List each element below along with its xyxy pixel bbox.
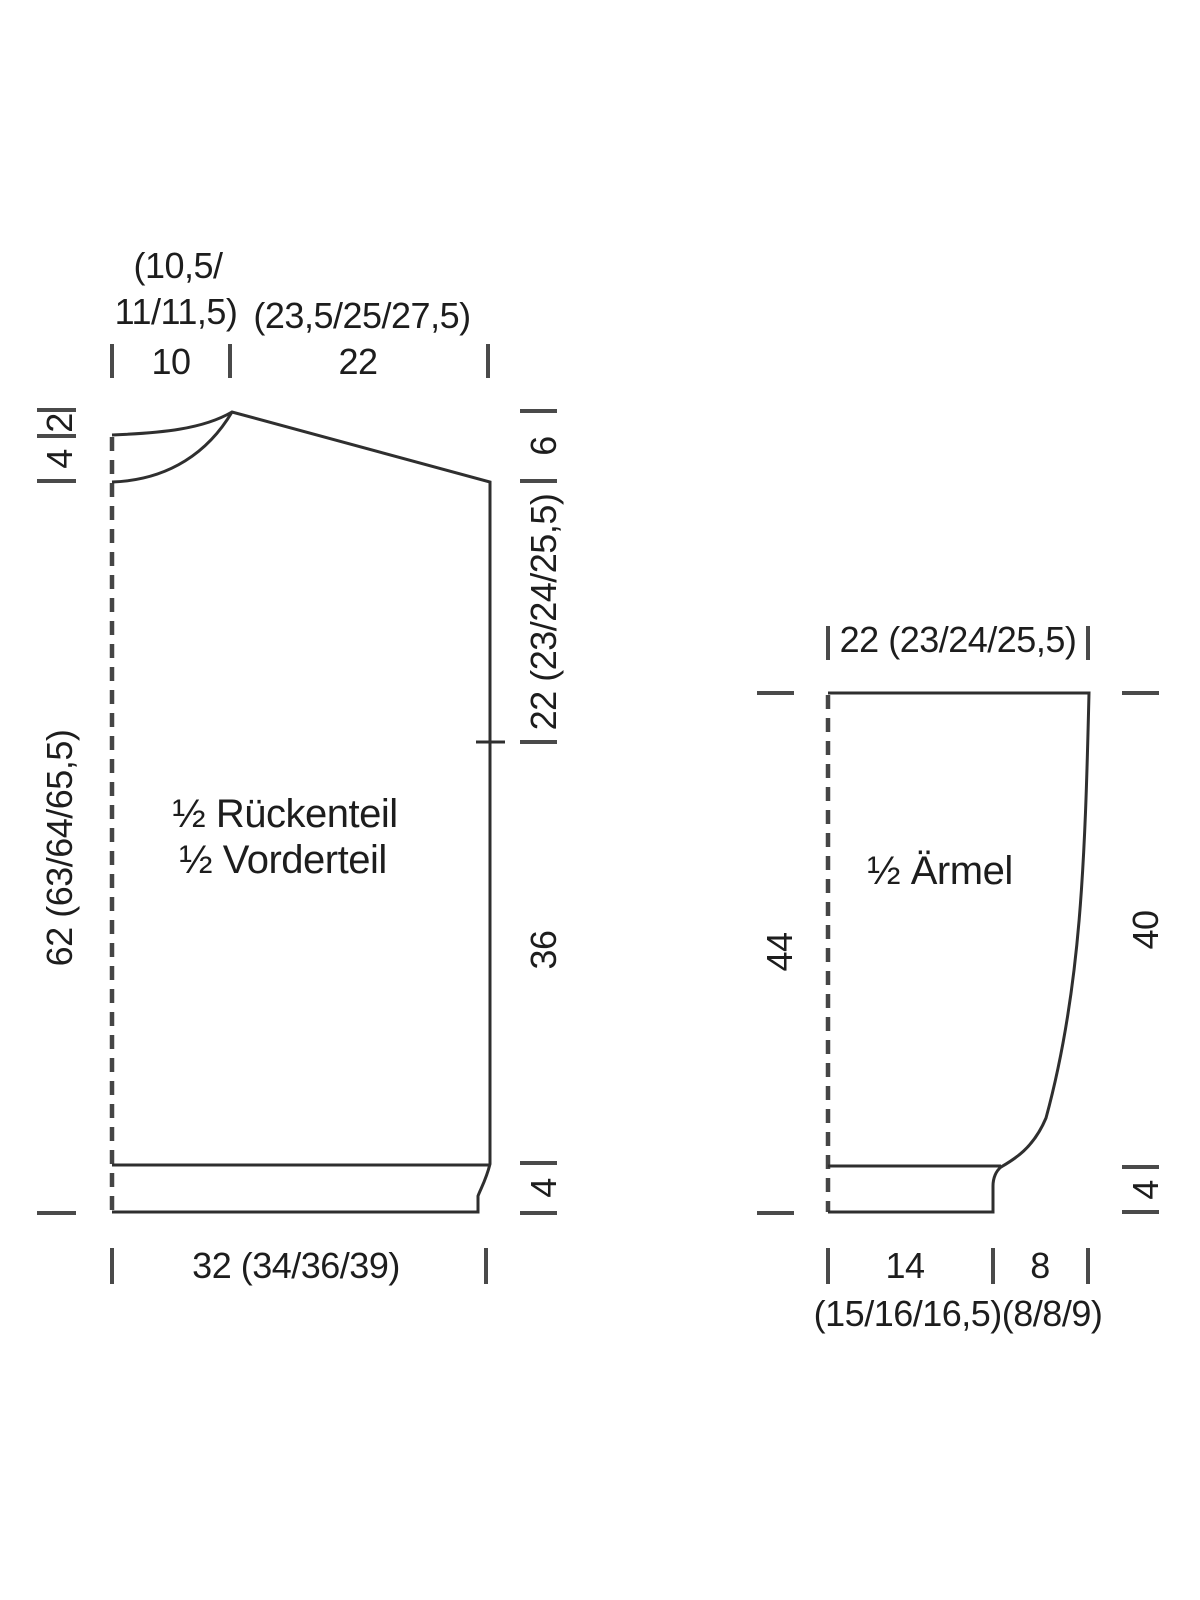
sleeve-cuff-sizes: (15/16/16,5) [814,1293,1002,1334]
body-ribbing-height: 4 [523,1178,564,1198]
sleeve-cuff-width: 14 [885,1245,924,1286]
sleeve-bottom-sizes: (15/16/16,5)(8/8/9) [814,1293,1103,1334]
sleeve-piece-name: ½ Ärmel [867,849,1012,893]
body-front-neck-depth: 4 [39,449,80,469]
pattern-schematic-canvas: (10,5/ 11/11,5) (23,5/25/27,5) 10 22 ½ R… [0,0,1200,1600]
sleeve-outline [828,693,1089,1212]
sleeve-piece [828,693,1089,1212]
body-neck-sizes-line1: (10,5/ [133,245,223,286]
body-back-neck-depth: 2 [39,413,80,433]
body-piece-name-line1: ½ Rückenteil [172,792,397,836]
body-neck-width: 10 [151,341,190,382]
sleeve-upper-length: 40 [1125,910,1166,949]
sleeve-ext-width: 8 [1030,1245,1050,1286]
sleeve-ribbing-height: 4 [1125,1180,1166,1200]
body-shoulder-slope: 6 [523,436,564,456]
pattern-schematic: (10,5/ 11/11,5) (23,5/25/27,5) 10 22 ½ R… [0,0,1200,1600]
sleeve-top-width: 22 (23/24/25,5) [840,619,1077,660]
sleeve-ext-sizes: (8/8/9) [1002,1293,1103,1334]
sleeve-right-ticks [1122,693,1159,1212]
body-piece-name-line2: ½ Vorderteil [179,838,386,882]
body-shoulder-width: 22 [338,341,377,382]
body-length: 62 (63/64/65,5) [39,730,80,967]
body-side-length: 36 [523,930,564,969]
body-shoulder-sizes: (23,5/25/27,5) [253,295,470,336]
body-front-neck-curve [112,412,232,482]
body-neck-sizes-line2: 11/11,5) [115,291,238,332]
body-bottom-width: 32 (34/36/39) [192,1245,400,1286]
sleeve-length: 44 [759,932,800,971]
body-armhole-depth: 22 (23/24/25,5) [523,494,564,731]
